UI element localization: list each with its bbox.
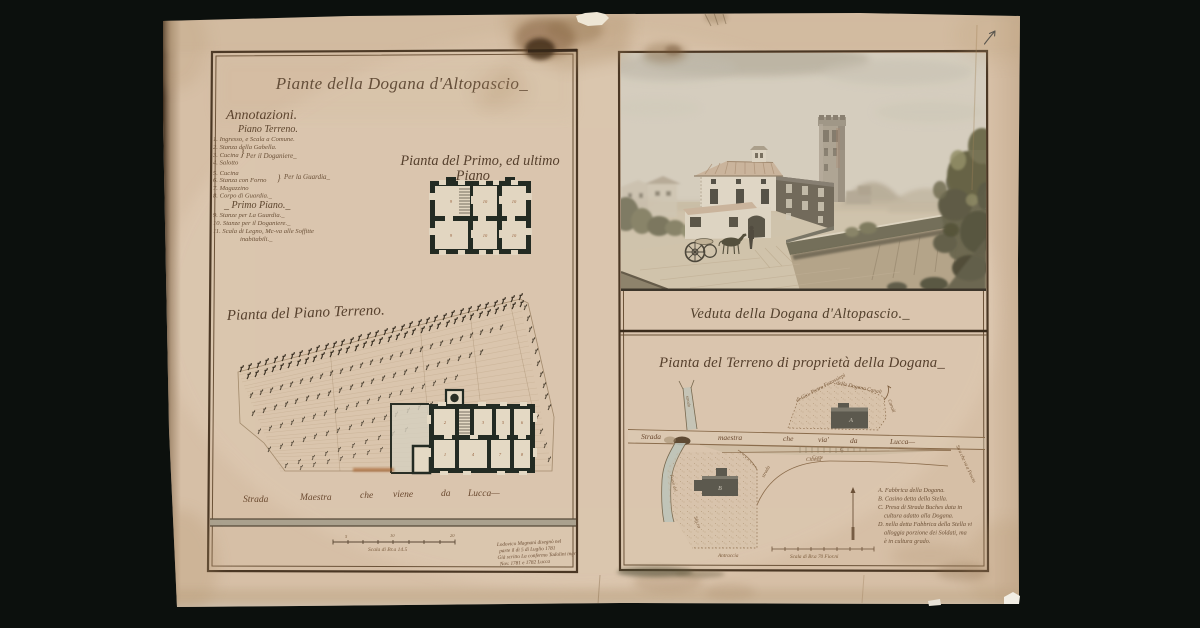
svg-text:Per il Doganiere_: Per il Doganiere_ — [245, 152, 297, 160]
svg-text:}: } — [240, 147, 245, 159]
svg-text:A: A — [848, 417, 853, 424]
svg-text:Lucca—: Lucca— — [467, 489, 500, 499]
svg-text:}: } — [277, 173, 281, 183]
svg-text:7. Magazzino: 7. Magazzino — [213, 185, 249, 192]
svg-text:10: 10 — [390, 533, 395, 538]
svg-text:Scala di Br.a 70 Fior.ni: Scala di Br.a 70 Fior.ni — [790, 554, 839, 560]
svg-text:10: 10 — [512, 199, 517, 204]
svg-text:A. Fabbrica della Dogana.: A. Fabbrica della Dogana. — [877, 487, 945, 494]
svg-text:cultura adatto alla Dogana.: cultura adatto alla Dogana. — [884, 513, 953, 520]
svg-text:6. Stanza con Forno: 6. Stanza con Forno — [213, 177, 267, 184]
svg-text:Maestra: Maestra — [299, 493, 332, 503]
svg-text:10: 10 — [483, 199, 488, 204]
svg-text:D. nella detta Fabbrica della: D. nella detta Fabbrica della Stella vi — [877, 521, 972, 528]
svg-text:B: B — [718, 486, 722, 492]
svg-text:Pianta del Primo, ed ultimo: Pianta del Primo, ed ultimo — [399, 153, 559, 169]
svg-text:Veduta della Dogana d'Altopasc: Veduta della Dogana d'Altopascio._ — [690, 306, 910, 322]
svg-text:Per la Guardia_: Per la Guardia_ — [283, 173, 331, 181]
svg-text:alloggia porzione dei Soldati,: alloggia porzione dei Soldati, ma — [884, 530, 967, 537]
svg-text:4. Salotto: 4. Salotto — [213, 160, 239, 167]
svg-text:1: 1 — [444, 452, 446, 457]
svg-text:via': via' — [818, 435, 829, 444]
svg-text:1. Ingresso, e Scala a Comune.: 1. Ingresso, e Scala a Comune. — [213, 136, 295, 143]
svg-text:da: da — [441, 489, 451, 499]
svg-text:8. Corpo di Guardia._: 8. Corpo di Guardia._ — [213, 193, 273, 200]
svg-text:_ Primo Piano._: _ Primo Piano._ — [223, 200, 291, 211]
svg-text:2. Stanza della Gabella.: 2. Stanza della Gabella. — [213, 144, 277, 151]
svg-text:9. Stanze per La Guardia._: 9. Stanze per La Guardia._ — [213, 212, 285, 219]
svg-text:C: C — [840, 447, 844, 453]
svg-text:Pianta del Terreno di propriet: Pianta del Terreno di proprietà della Do… — [658, 355, 945, 371]
svg-text:Strada: Strada — [243, 495, 269, 505]
svg-text:Antraccia: Antraccia — [717, 553, 739, 559]
svg-text:maestra: maestra — [718, 433, 742, 442]
svg-text:che: che — [360, 491, 373, 501]
svg-text:C. Presa di Strada Buches data: C. Presa di Strada Buches data in — [878, 504, 962, 511]
svg-text:5. Cucina: 5. Cucina — [213, 170, 239, 177]
svg-text:da: da — [850, 436, 858, 445]
svg-text:che: che — [783, 434, 794, 443]
svg-text:viene: viene — [393, 490, 413, 500]
svg-text:Strada: Strada — [641, 432, 661, 441]
svg-text:Piano Terreno.: Piano Terreno. — [237, 124, 298, 135]
svg-text:inabitabili._: inabitabili._ — [240, 236, 273, 243]
svg-text:Lucca—: Lucca— — [889, 437, 915, 446]
svg-text:10: 10 — [483, 233, 488, 238]
svg-text:Scala di Br.a 14.5: Scala di Br.a 14.5 — [368, 546, 408, 553]
svg-text:10. Stanze per il Doganiere._: 10. Stanze per il Doganiere._ — [213, 220, 291, 227]
svg-text:B. Casino detta della Stella.: B. Casino detta della Stella. — [878, 496, 947, 503]
svg-text:10: 10 — [512, 233, 517, 238]
svg-text:20: 20 — [450, 533, 455, 538]
svg-text:11. Scala di Legno, Mc-va alle: 11. Scala di Legno, Mc-va alle Soffitte — [213, 228, 314, 235]
svg-text:Corte: Corte — [812, 456, 824, 461]
svg-text:3. Cucina: 3. Cucina — [212, 152, 239, 159]
